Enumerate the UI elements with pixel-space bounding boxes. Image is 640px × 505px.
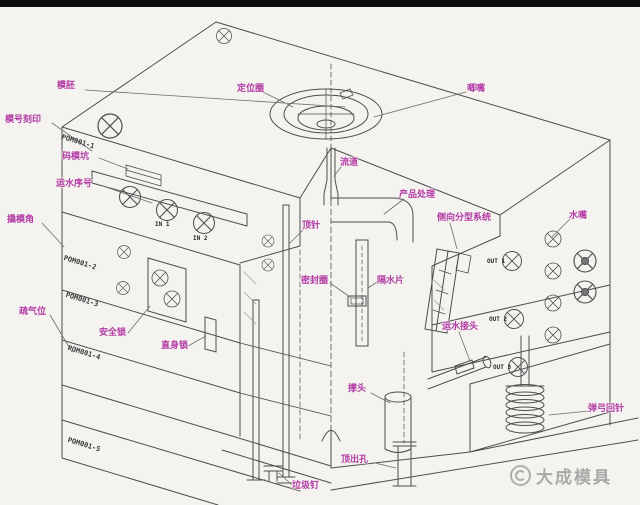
port-tag-out2: OUT 2 xyxy=(489,316,507,323)
watermark-logo-icon xyxy=(510,465,531,486)
mold-outline xyxy=(62,22,610,458)
callout-product-area: 产品处理 xyxy=(399,189,435,199)
mold-cutaway-drawing xyxy=(0,0,640,505)
screenshot-root: 模胚 模号刻印 码模坑 运水序号 撬模角 疏气位 安全锁 直身锁 定位圈 唧嘴 … xyxy=(0,0,640,505)
callout-safety-lock: 安全锁 xyxy=(99,327,126,337)
callout-water-baffle: 隔水片 xyxy=(377,275,404,285)
locating-ring-shape xyxy=(270,89,382,139)
callout-locating-ring: 定位圈 xyxy=(237,83,264,93)
port-tag-out1: OUT 1 xyxy=(487,258,505,265)
top-face-screws xyxy=(98,29,232,139)
port-tag-out3: OUT 3 xyxy=(493,364,511,371)
callout-stop-pin: 垃圾钉 xyxy=(292,480,319,490)
callout-mold-number-engraving: 模号刻印 xyxy=(5,114,41,124)
callout-water-connector: 运水接头 xyxy=(442,321,478,331)
callout-mold-base: 模胚 xyxy=(57,80,75,90)
callout-sprue-bushing: 唧嘴 xyxy=(467,83,485,93)
callout-support-pillar: 撑头 xyxy=(348,383,366,393)
callout-pry-slot: 撬模角 xyxy=(7,214,34,224)
watermark: 大成模具 xyxy=(510,463,612,488)
callout-air-vent: 疏气位 xyxy=(19,306,46,316)
callout-ejection-hole: 顶出孔 xyxy=(341,454,368,464)
callout-water-nozzle: 水嘴 xyxy=(569,210,587,220)
callout-side-parting-system: 侧向分型系统 xyxy=(437,212,491,222)
callout-clamping-slot: 码模坑 xyxy=(62,151,89,161)
port-tag-in2: IN 2 xyxy=(193,235,207,242)
callout-runner: 流道 xyxy=(340,157,358,167)
callout-seal-ring: 密封圈 xyxy=(301,275,328,285)
watermark-brand-text: 大成模具 xyxy=(536,463,612,488)
callout-straight-interlock: 直身锁 xyxy=(161,340,188,350)
right-face xyxy=(331,215,638,490)
callout-ejector-pin: 顶针 xyxy=(302,220,320,230)
callout-water-line-number: 运水序号 xyxy=(56,178,92,188)
callout-spring-return-pin: 弹弓回针 xyxy=(588,403,624,413)
port-tag-in1: IN 1 xyxy=(155,221,169,228)
